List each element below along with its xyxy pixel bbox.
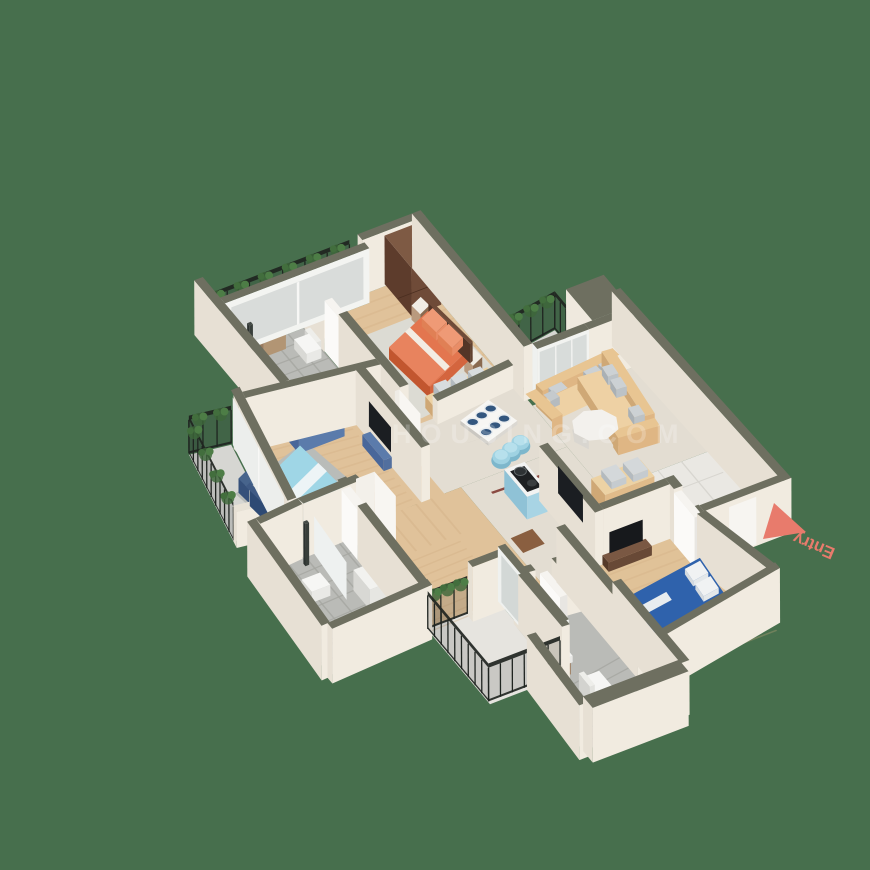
svg-text:Entry: Entry bbox=[790, 528, 838, 563]
svg-text:HOUSING.COM: HOUSING.COM bbox=[392, 419, 688, 449]
